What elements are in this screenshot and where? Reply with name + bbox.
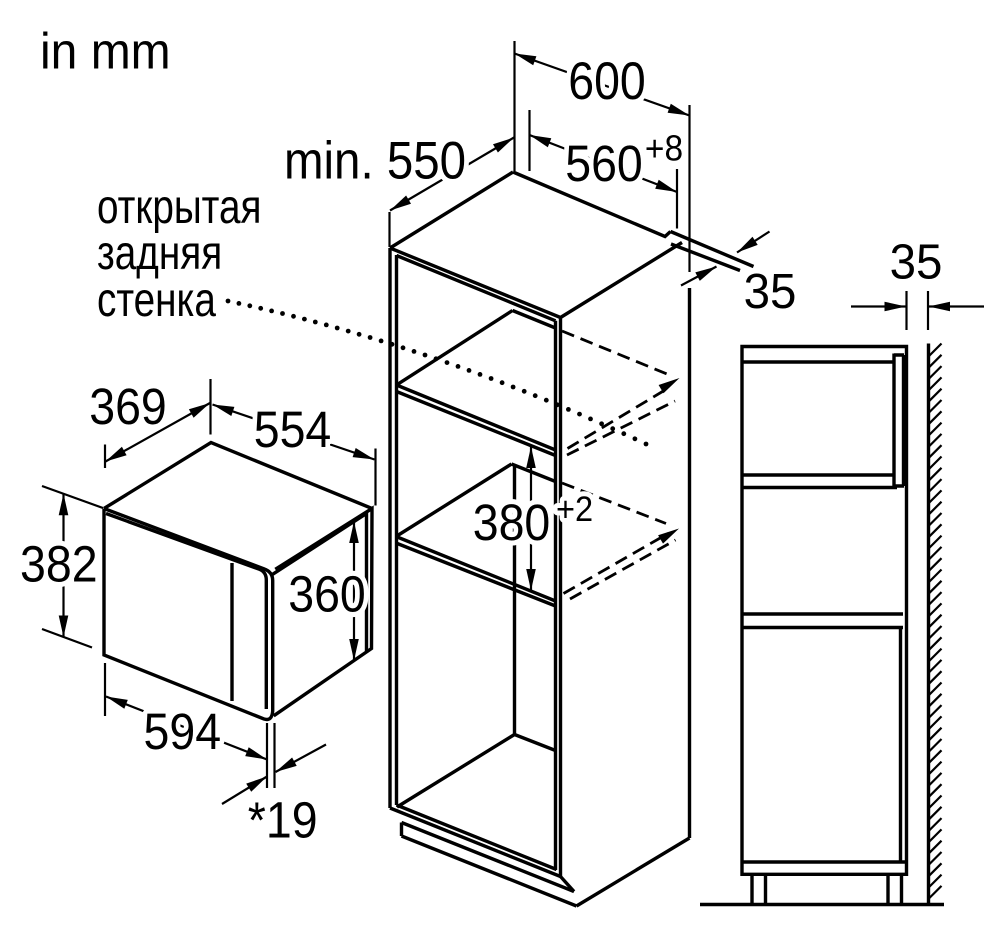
svg-text:*19: *19: [248, 793, 318, 849]
svg-text:360: 360: [288, 567, 366, 623]
svg-text:35: 35: [890, 235, 943, 290]
svg-text:+2: +2: [556, 490, 593, 529]
svg-text:in mm: in mm: [40, 23, 171, 80]
svg-text:+8: +8: [645, 129, 683, 168]
svg-text:35: 35: [744, 264, 797, 319]
svg-text:min. 550: min. 550: [284, 131, 466, 190]
svg-text:стенка: стенка: [97, 273, 216, 327]
svg-text:554: 554: [254, 402, 332, 458]
svg-text:задняя: задняя: [97, 226, 222, 280]
svg-text:594: 594: [144, 704, 222, 760]
svg-text:382: 382: [20, 537, 98, 593]
svg-text:560: 560: [565, 136, 643, 192]
svg-text:380: 380: [473, 495, 551, 551]
svg-text:369: 369: [89, 379, 167, 435]
svg-text:600: 600: [568, 51, 646, 110]
